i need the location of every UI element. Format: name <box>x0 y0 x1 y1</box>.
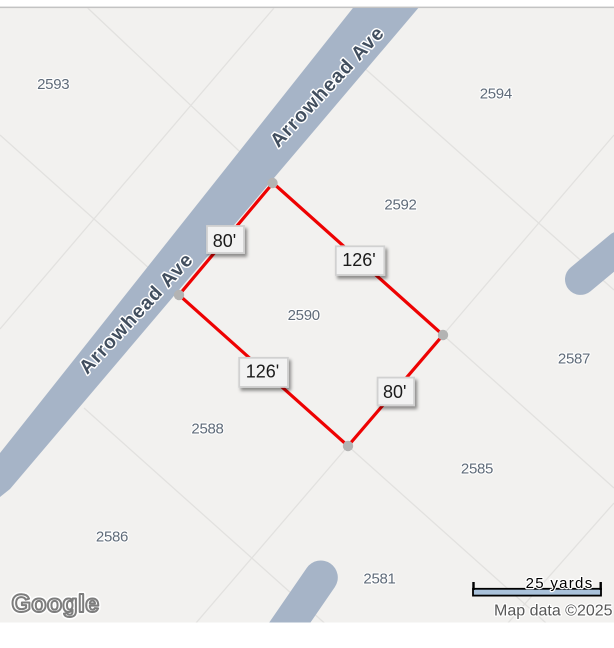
svg-text:126': 126' <box>246 362 279 382</box>
svg-text:2590: 2590 <box>288 307 320 324</box>
svg-text:2585: 2585 <box>461 460 493 477</box>
svg-text:Map data ©2025: Map data ©2025 <box>494 603 613 620</box>
svg-text:Google: Google <box>12 590 100 618</box>
svg-text:80': 80' <box>383 382 406 402</box>
svg-text:2581: 2581 <box>363 570 395 587</box>
svg-text:2592: 2592 <box>384 196 416 213</box>
svg-text:2587: 2587 <box>558 350 590 367</box>
svg-text:2588: 2588 <box>191 420 223 437</box>
svg-text:2594: 2594 <box>480 85 512 102</box>
svg-text:25 yards: 25 yards <box>526 575 594 592</box>
svg-text:126': 126' <box>342 250 375 270</box>
svg-text:2586: 2586 <box>96 528 128 545</box>
svg-text:80': 80' <box>213 231 236 251</box>
svg-text:2593: 2593 <box>37 76 69 93</box>
